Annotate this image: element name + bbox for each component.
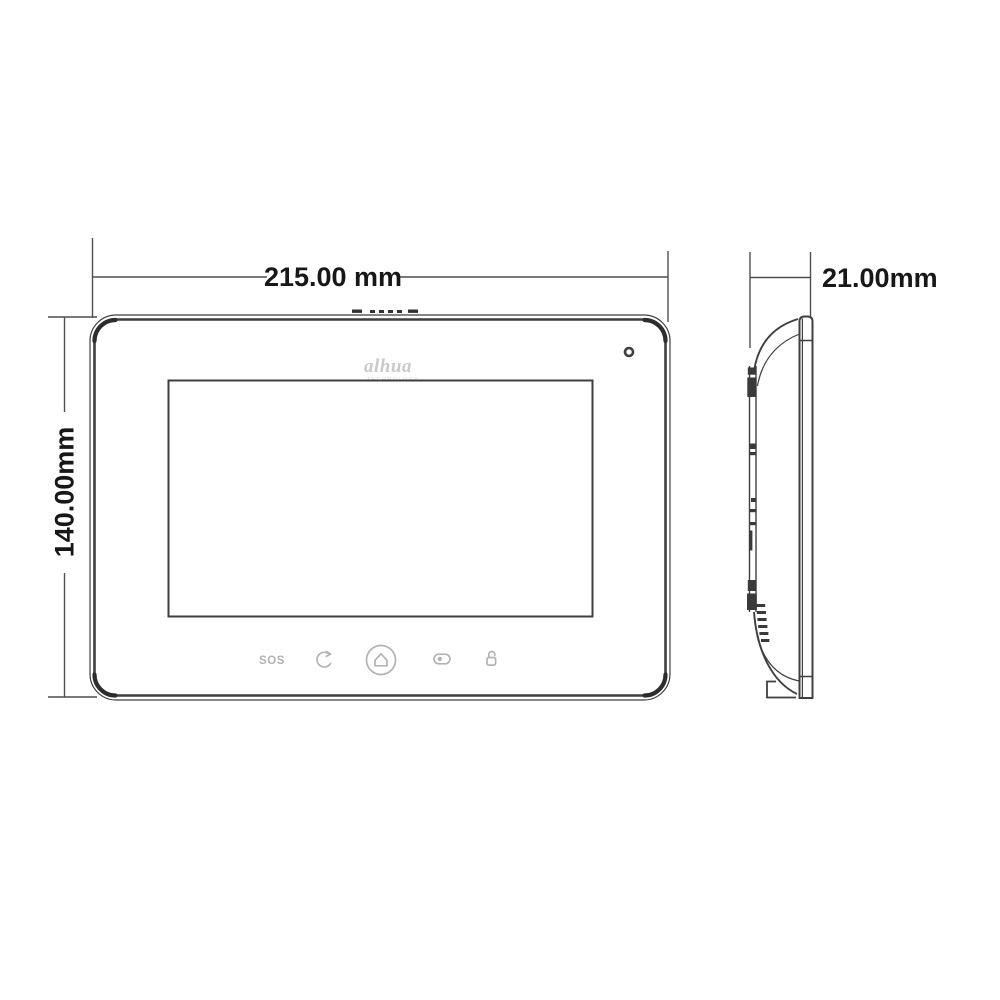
vent-slot (759, 632, 768, 635)
rail-clip (749, 531, 752, 551)
back-shell-top-outer (754, 319, 798, 371)
mounting-rail (747, 366, 757, 612)
speaker-grille (352, 310, 418, 314)
depth-dimension: 21.00mm (750, 252, 938, 348)
rail-clip (750, 509, 756, 512)
grille-slot (408, 310, 418, 313)
microphone-hole-icon (625, 348, 633, 356)
grille-slot (370, 310, 375, 313)
call-button (317, 652, 330, 667)
width-dimension-label: 215.00 mm (264, 262, 402, 292)
dahua-logo: alhua (364, 356, 412, 377)
vent-slot (757, 611, 766, 614)
rail-clip (750, 452, 756, 455)
top-bracket (748, 368, 756, 375)
grille-slot (379, 310, 384, 313)
unlock-icon-shackle (489, 652, 495, 658)
home-button (367, 646, 396, 675)
vent-slot (757, 618, 766, 621)
monitor-icon (434, 654, 450, 664)
sos-button: SOS (259, 655, 285, 667)
dimensional-drawing-page: 215.00 mm 140.00mm 21.00mm (0, 0, 1000, 1000)
bottom-bracket (748, 580, 756, 591)
unlock-icon (487, 658, 496, 666)
depth-dimension-label: 21.00mm (822, 263, 938, 293)
vent-slot (756, 604, 765, 607)
screen (169, 381, 593, 617)
back-shell-top-inner (758, 334, 800, 386)
vent-slot (758, 625, 767, 628)
unlock-button (487, 652, 496, 666)
rail-clip (751, 498, 756, 502)
monitor-icon-dot (438, 657, 442, 661)
front-view: alhua TECHNOLOGY SOS (90, 310, 670, 701)
monitor-dimension-diagram: 215.00 mm 140.00mm 21.00mm (0, 0, 1000, 1000)
home-button-ring (367, 646, 396, 675)
bottom-bracket (747, 594, 757, 611)
back-shell-bottom-inner (757, 636, 799, 681)
grille-slot (388, 310, 393, 313)
home-icon (375, 654, 387, 666)
front-panel (800, 317, 813, 699)
side-view (747, 317, 813, 699)
vent-slot (761, 639, 769, 642)
monitor-button (434, 654, 450, 664)
rail-clip (750, 444, 756, 450)
grille-slot (397, 310, 402, 313)
top-bracket (747, 378, 756, 398)
width-dimension: 215.00 mm (93, 238, 669, 322)
grille-slot (352, 310, 362, 313)
rail-clip (750, 522, 756, 525)
height-dimension-label: 140.00mm (50, 427, 80, 558)
button-row: SOS (259, 646, 496, 675)
